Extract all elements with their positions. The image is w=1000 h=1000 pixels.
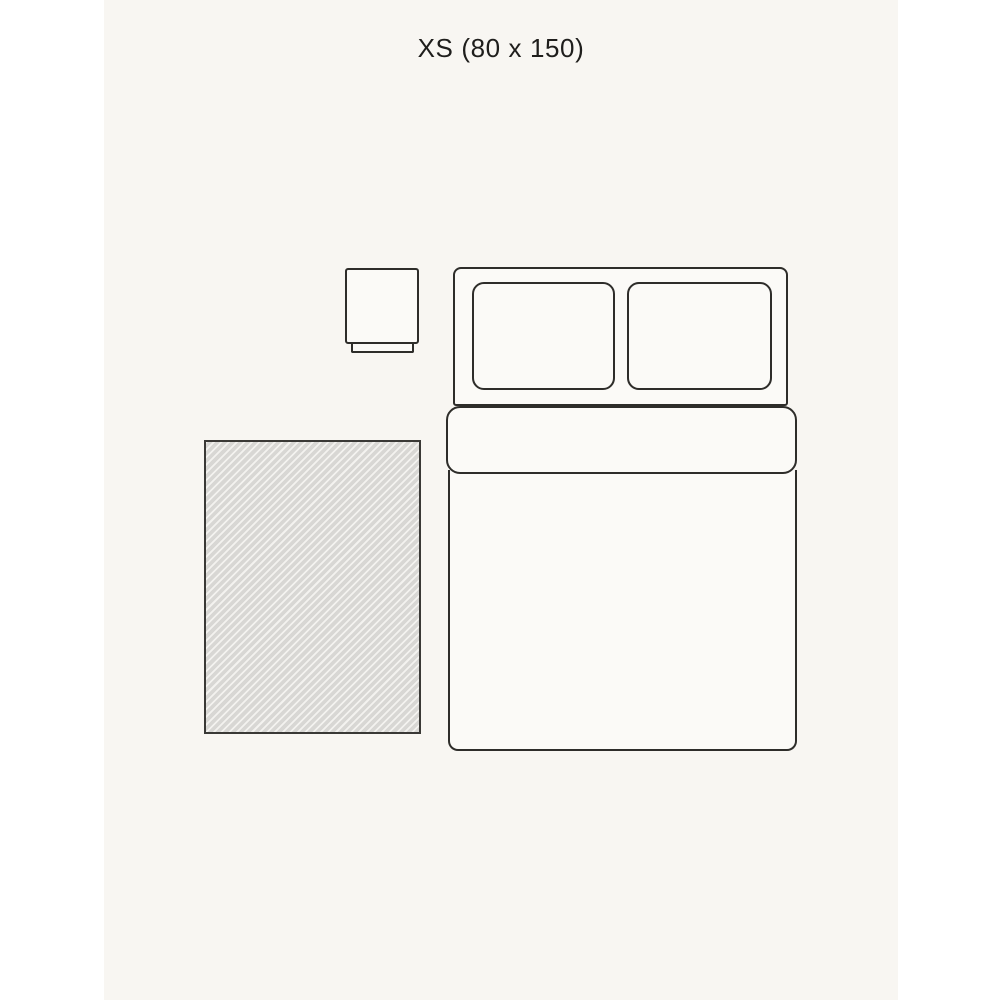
page-background: XS (80 x 150): [0, 0, 1000, 1000]
size-guide-canvas: XS (80 x 150): [104, 0, 898, 1000]
rug-size-label: XS (80 x 150): [104, 33, 898, 64]
nightstand-icon: [345, 268, 419, 344]
duvet-body: [448, 470, 797, 751]
pillow-right-icon: [627, 282, 772, 390]
nightstand-base: [351, 344, 414, 353]
rug-swatch: [204, 440, 421, 734]
duvet-fold: [446, 406, 797, 474]
pillow-left-icon: [472, 282, 615, 390]
